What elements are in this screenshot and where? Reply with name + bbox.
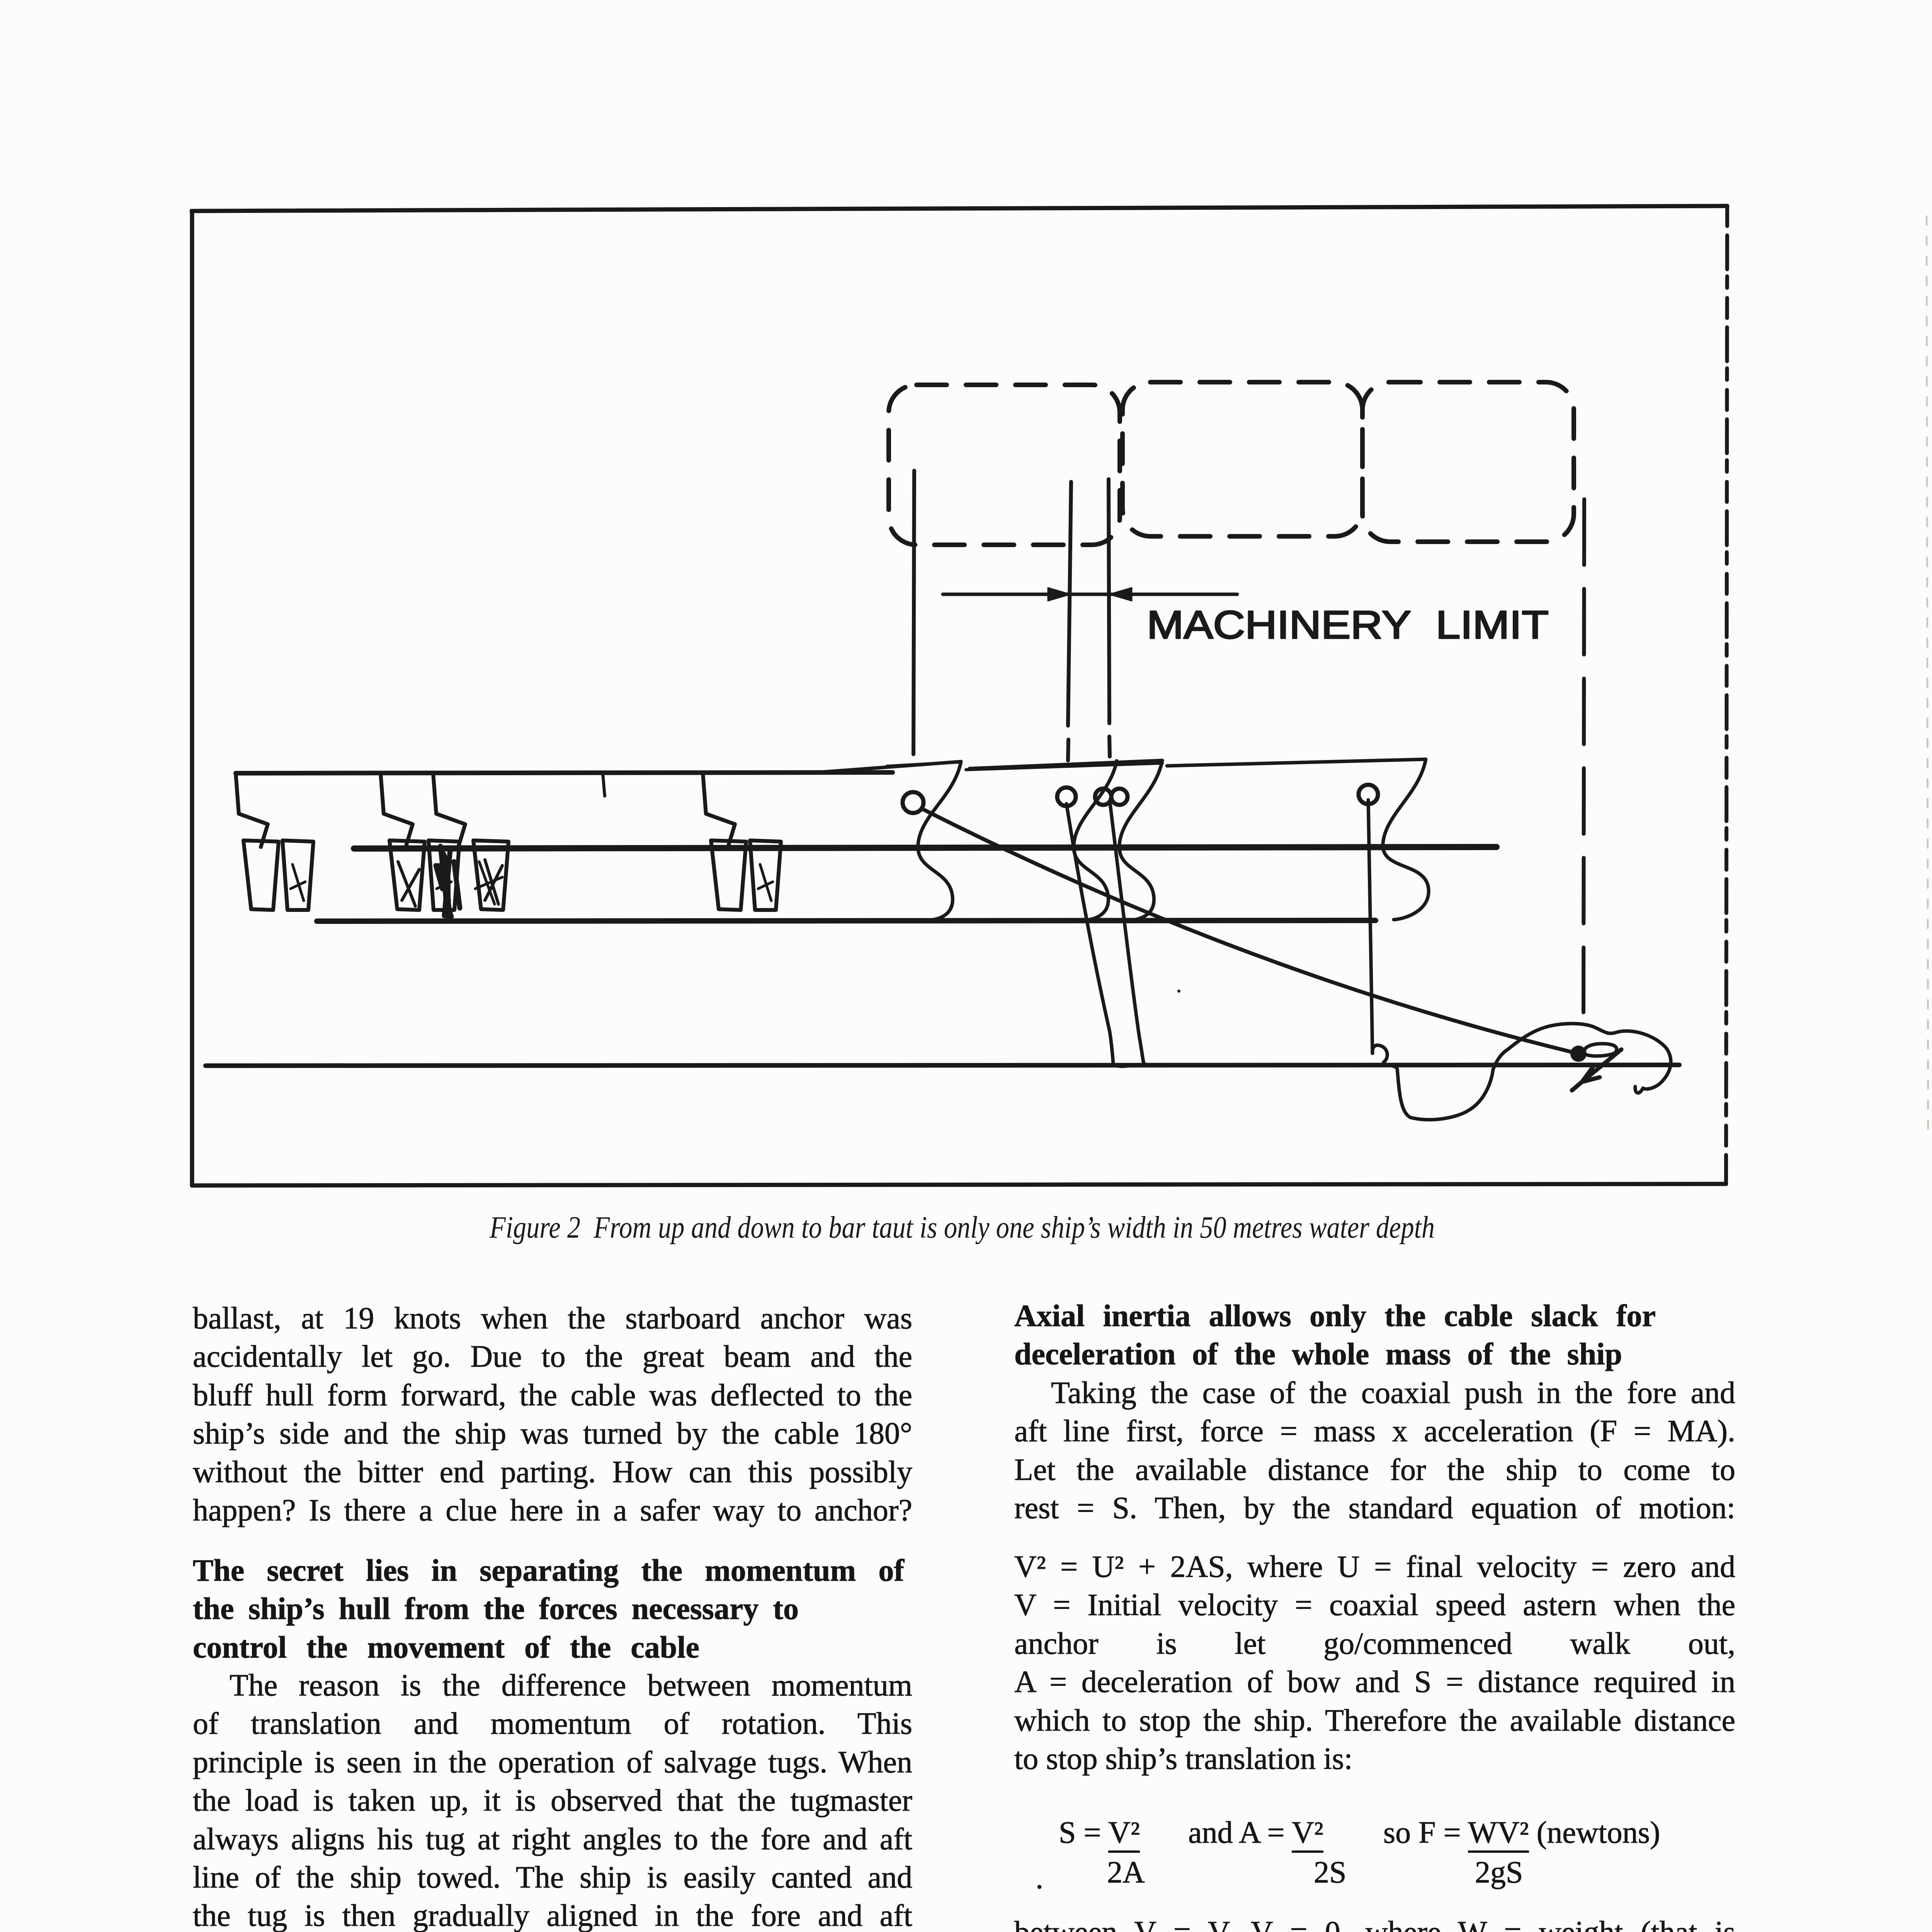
svg-text:Figure 2 From up and down to: Figure 2 From up and down to bar taut is… [489,1211,1435,1245]
svg-text:MACHINERY LIMIT: MACHINERY LIMIT [1147,603,1549,647]
